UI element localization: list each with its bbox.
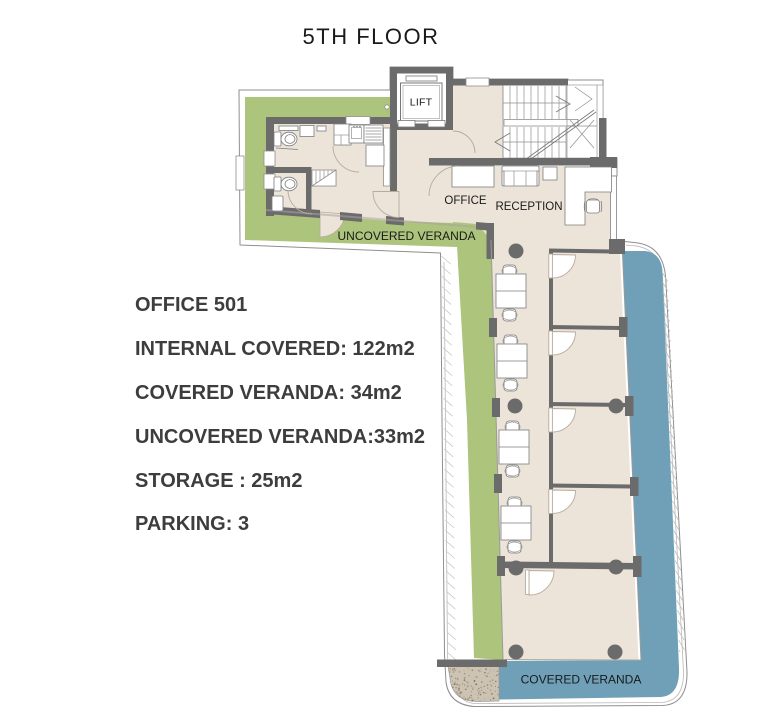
svg-text:COVERED VERANDA: 34m2: COVERED VERANDA: 34m2 [135,382,402,404]
svg-text:STORAGE : 25m2: STORAGE : 25m2 [135,470,302,492]
svg-text:UNCOVERED VERANDA:33m2: UNCOVERED VERANDA:33m2 [135,426,425,448]
svg-text:LIFT: LIFT [410,97,433,109]
svg-text:OFFICE 501: OFFICE 501 [135,294,247,316]
svg-text:INTERNAL COVERED: 122m2: INTERNAL COVERED: 122m2 [135,338,415,360]
svg-text:COVERED VERANDA: COVERED VERANDA [521,673,642,687]
svg-text:RECEPTION: RECEPTION [495,201,562,213]
svg-text:5TH FLOOR: 5TH FLOOR [303,24,440,49]
svg-text:UNCOVERED VERANDA: UNCOVERED VERANDA [337,229,475,243]
svg-text:PARKING: 3: PARKING: 3 [135,513,249,535]
svg-text:OFFICE: OFFICE [444,195,486,207]
